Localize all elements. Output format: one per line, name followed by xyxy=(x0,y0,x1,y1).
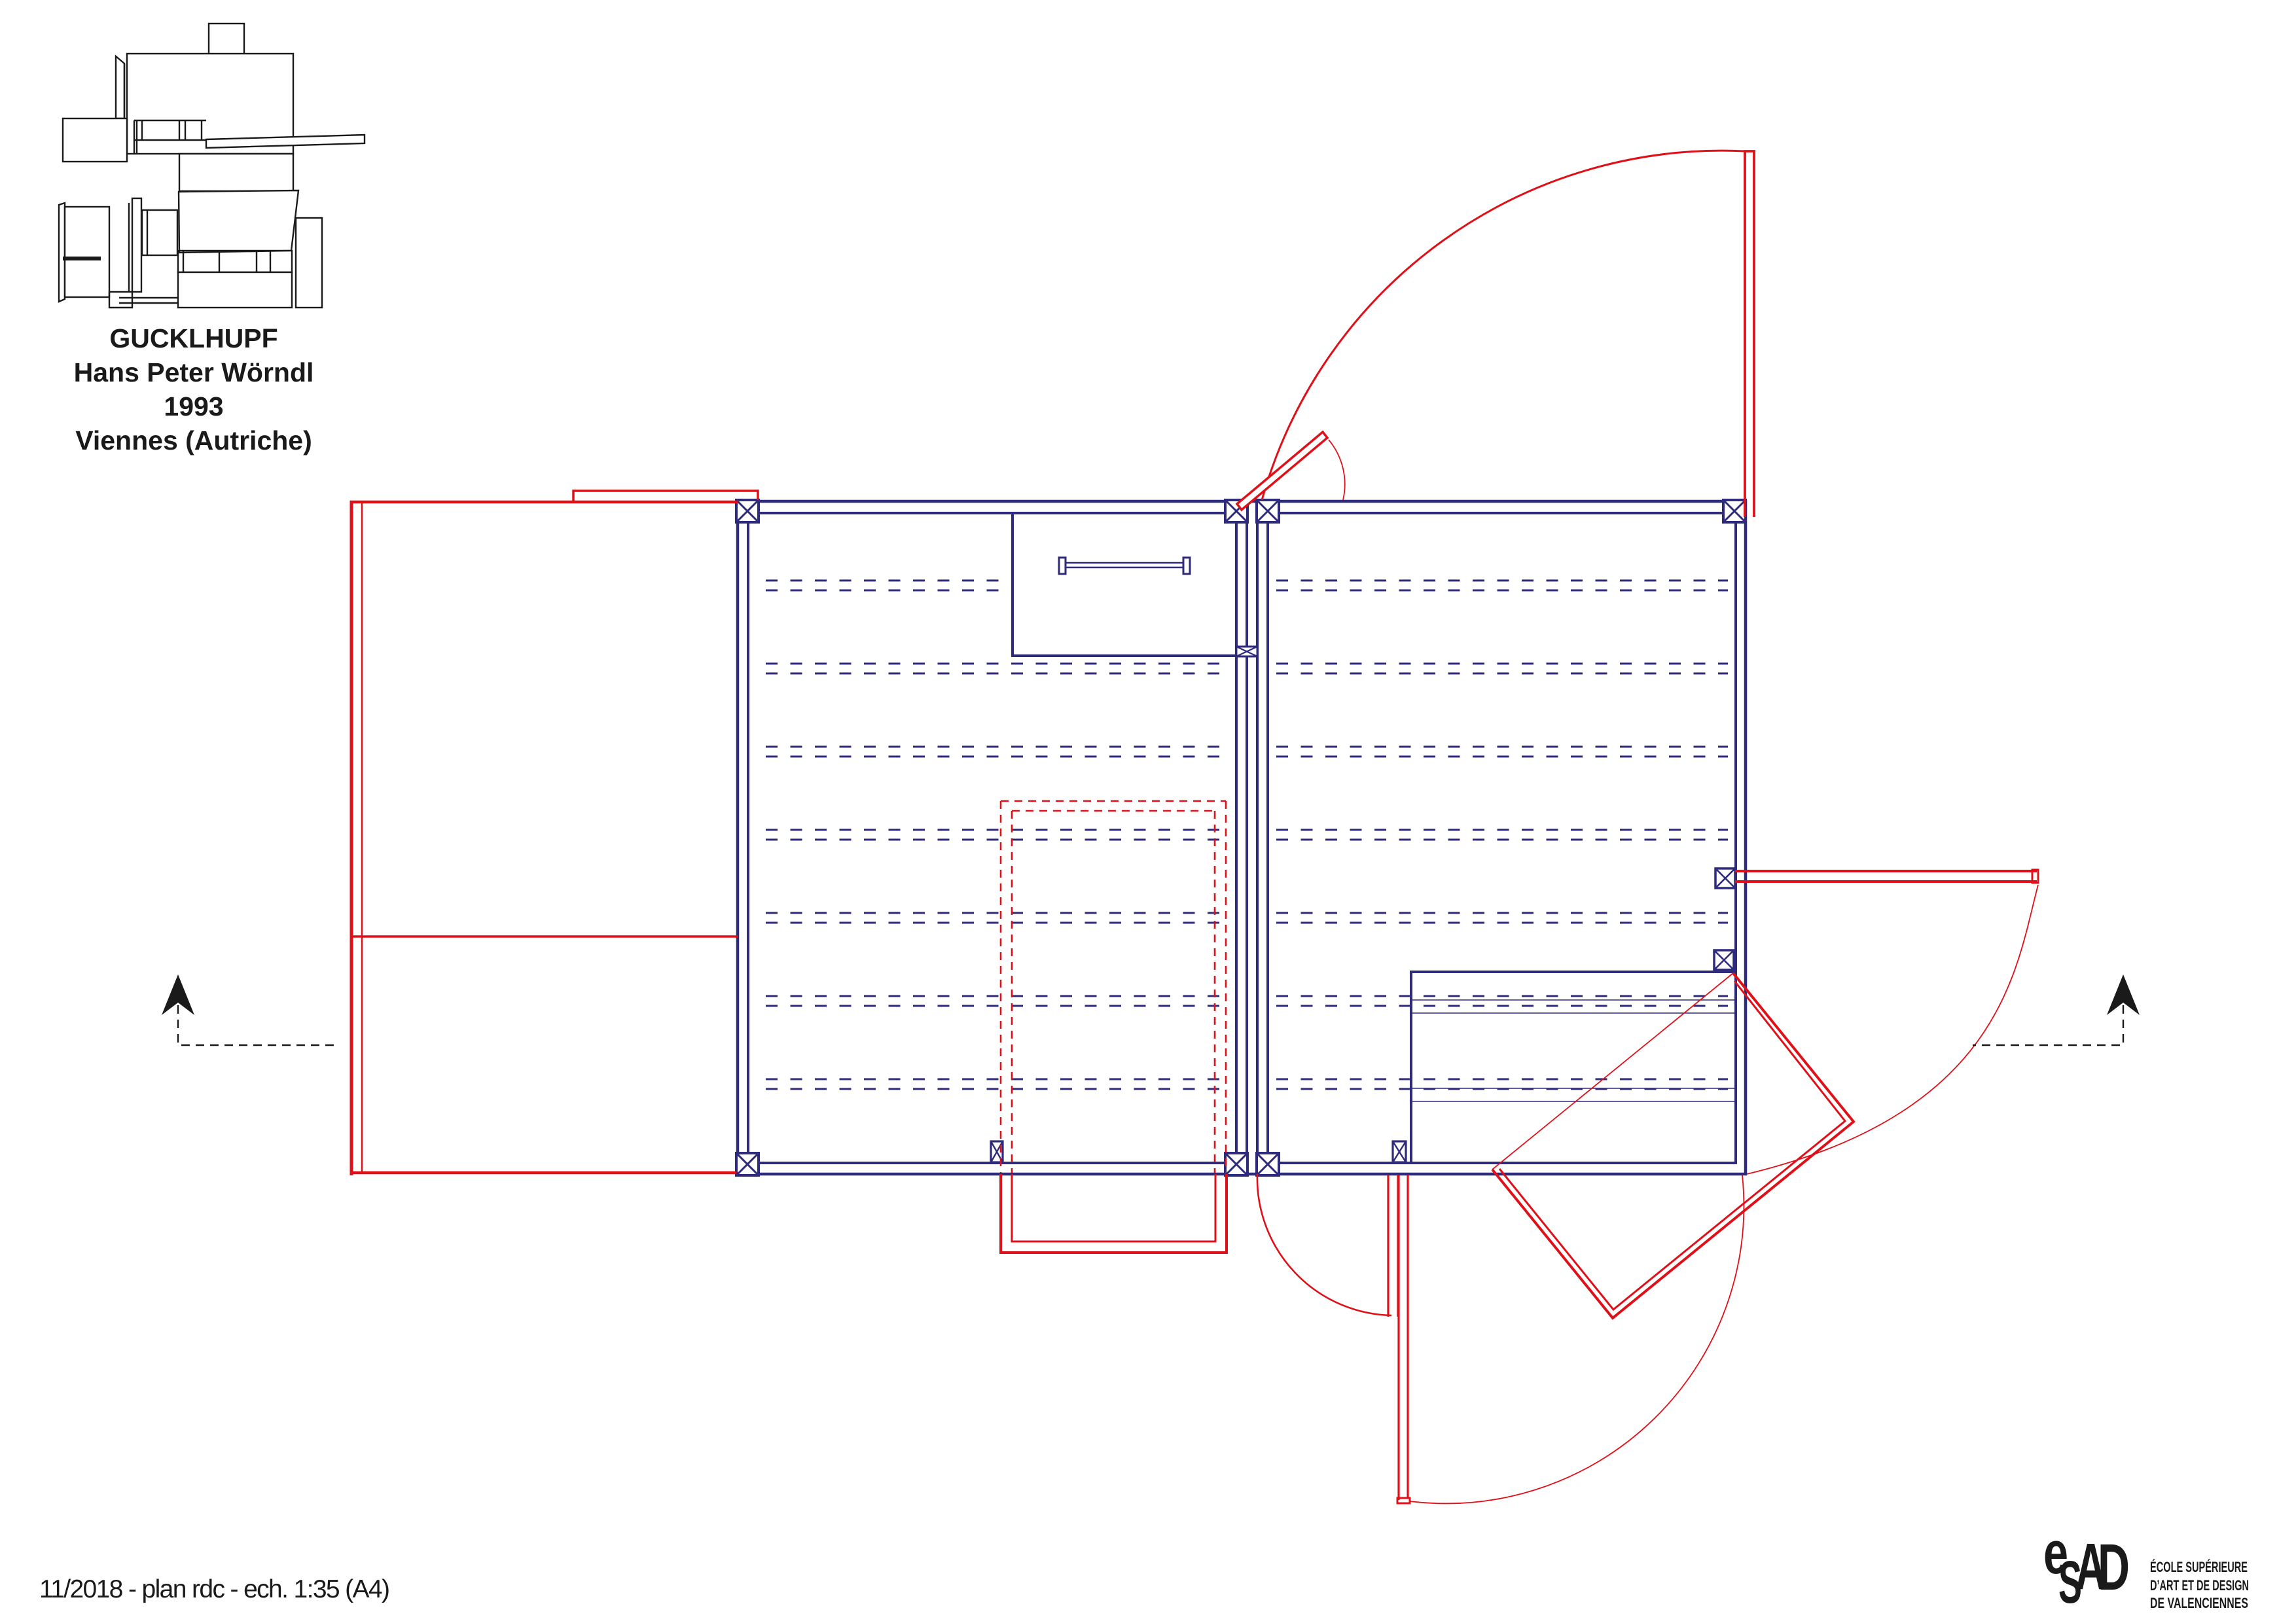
svg-text:ÉCOLE SUPÉRIEURE: ÉCOLE SUPÉRIEURE xyxy=(2150,1559,2248,1575)
svg-text:D’ART ET DE DESIGN: D’ART ET DE DESIGN xyxy=(2150,1577,2249,1594)
svg-text:DE VALENCIENNES: DE VALENCIENNES xyxy=(2150,1595,2248,1611)
svg-text:D: D xyxy=(2098,1531,2130,1604)
svg-text:Viennes (Autriche): Viennes (Autriche) xyxy=(75,425,312,455)
svg-text:1993: 1993 xyxy=(164,391,223,421)
svg-text:Hans Peter Wörndl: Hans Peter Wörndl xyxy=(74,357,314,387)
svg-text:GUCKLHUPF: GUCKLHUPF xyxy=(109,323,278,353)
svg-text:11/2018 - plan rdc - ech. 1:35: 11/2018 - plan rdc - ech. 1:35 (A4) xyxy=(39,1575,390,1603)
